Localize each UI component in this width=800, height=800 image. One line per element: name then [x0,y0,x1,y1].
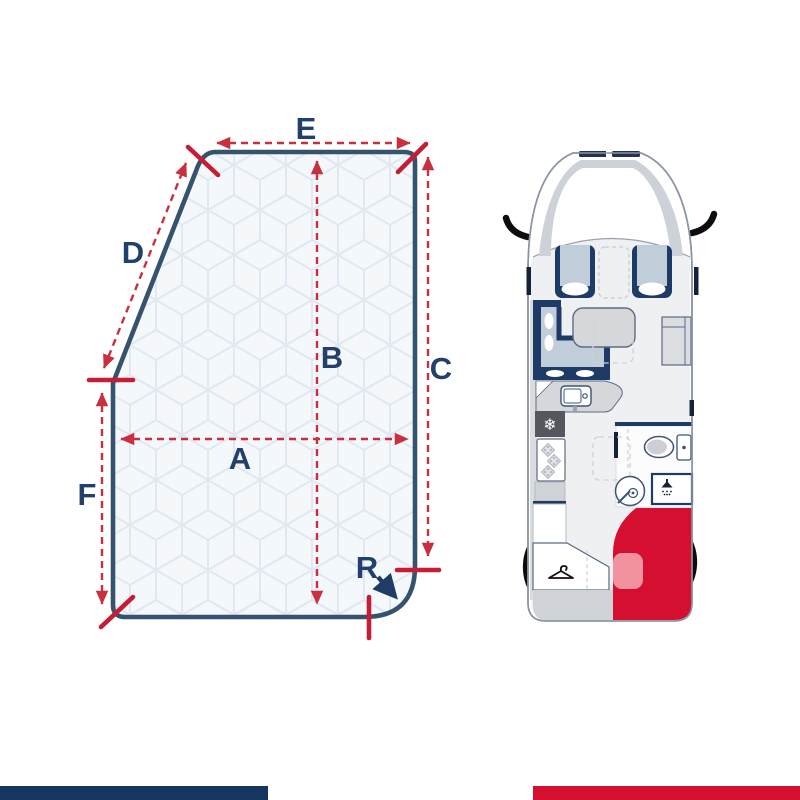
door-pillar-left [527,267,532,295]
mirror-right [692,214,714,233]
rear-cabinet [533,504,566,543]
dim-label-R: R [356,550,378,585]
motorhome-floorplan: ❄ [506,151,714,622]
mirror-left [506,218,528,237]
dim-label-B: B [321,340,343,375]
cab-seat-right [632,245,672,298]
dim-label-A: A [229,441,251,476]
fridge: ❄ [535,411,565,437]
dim-label-D: D [122,235,144,270]
bathroom-door-pillar [614,432,618,458]
shower-cabin [652,474,692,504]
snowflake-icon: ❄ [543,415,556,434]
cab-seat-left [555,245,595,298]
mattress-shape [113,152,415,617]
side-cabinet [662,317,691,365]
roof-hatch [579,151,640,158]
page-canvas: E D B C A F R [0,0,800,800]
counter-rear [535,482,565,501]
stove [537,439,565,481]
dinette-table [573,308,635,347]
mattress-dimension-diagram: E D B C A F R [78,111,453,638]
mattress-highlight [613,553,643,589]
shower-tray [616,477,645,506]
garage-area [533,590,613,620]
bathroom-wall [615,422,692,426]
dim-label-C: C [430,351,452,386]
footer-bar-right [533,786,800,800]
footer-bar-left [0,786,268,800]
dim-label-E: E [296,111,317,146]
dim-label-F: F [78,477,97,512]
window-pillar-right [690,400,695,416]
door-pillar-right [694,267,699,295]
